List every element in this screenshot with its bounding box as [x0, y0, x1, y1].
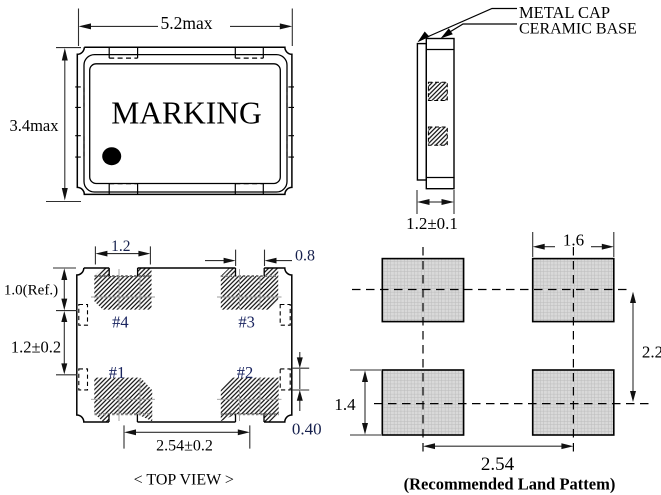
svg-text:CERAMIC BASE: CERAMIC BASE	[519, 21, 637, 38]
svg-text:3.4max: 3.4max	[9, 116, 59, 135]
svg-text:5.2max: 5.2max	[160, 13, 212, 33]
svg-text:#1: #1	[109, 363, 126, 382]
svg-text:< TOP VIEW >: < TOP VIEW >	[134, 472, 234, 489]
svg-text:0.8: 0.8	[295, 248, 315, 265]
svg-text:1.6: 1.6	[563, 231, 584, 250]
svg-text:1.2±0.1: 1.2±0.1	[406, 214, 458, 233]
svg-text:#2: #2	[237, 363, 254, 382]
svg-text:2.54: 2.54	[481, 454, 515, 475]
svg-text:(Recommended Land Pattem): (Recommended Land Pattem)	[404, 475, 616, 494]
svg-text:0.40: 0.40	[292, 420, 322, 439]
svg-text:1.4: 1.4	[334, 395, 356, 414]
svg-text:MARKING: MARKING	[111, 96, 262, 131]
svg-text:#3: #3	[238, 313, 255, 332]
svg-text:METAL CAP: METAL CAP	[519, 3, 610, 22]
svg-text:#4: #4	[112, 313, 129, 332]
svg-text:2.2: 2.2	[642, 343, 661, 362]
svg-text:2.54±0.2: 2.54±0.2	[156, 438, 213, 455]
svg-text:1.0(Ref.): 1.0(Ref.)	[4, 283, 58, 299]
svg-text:1.2: 1.2	[111, 238, 130, 255]
svg-text:1.2±0.2: 1.2±0.2	[11, 338, 61, 357]
